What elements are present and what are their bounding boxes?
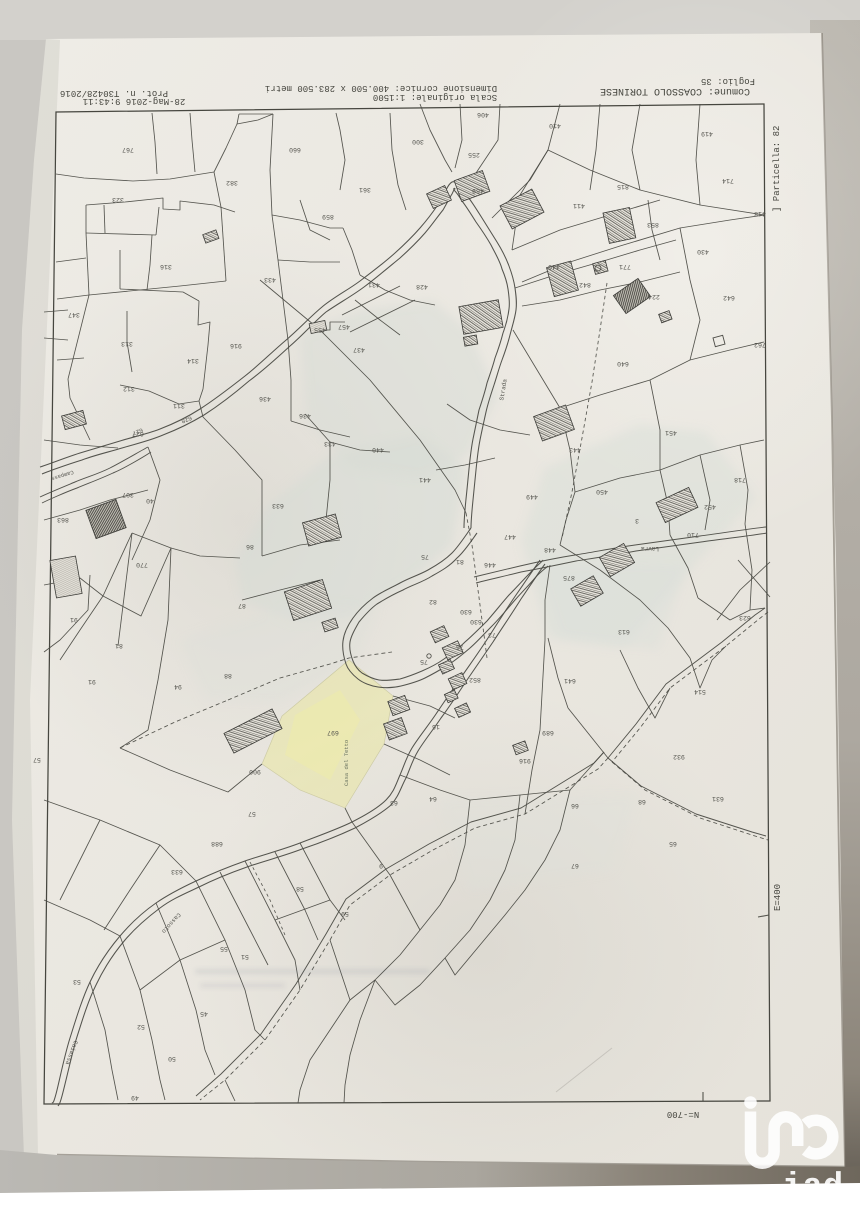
svg-text:52: 52 [137, 1023, 145, 1030]
svg-text:Casa del Tetto: Casa del Tetto [343, 740, 350, 786]
svg-text:65: 65 [669, 840, 677, 847]
svg-text:40: 40 [146, 497, 154, 504]
svg-text:630: 630 [460, 608, 472, 615]
svg-text:441: 441 [419, 476, 431, 483]
svg-text:469: 469 [472, 187, 484, 194]
svg-text:81: 81 [456, 558, 464, 565]
svg-text:443: 443 [569, 446, 581, 453]
svg-text:51: 51 [241, 953, 249, 960]
svg-text:73: 73 [488, 631, 496, 638]
svg-text:406: 406 [477, 111, 489, 118]
svg-text:431: 431 [368, 281, 380, 288]
svg-text:323: 323 [112, 196, 124, 203]
svg-text:16: 16 [432, 723, 440, 730]
svg-text:] Particella: 82: ] Particella: 82 [772, 126, 782, 212]
svg-text:916: 916 [519, 757, 531, 764]
svg-text:58: 58 [296, 885, 304, 892]
svg-text:689: 689 [542, 729, 554, 736]
svg-text:457: 457 [338, 323, 350, 330]
svg-text:28-Mag-2016 9:43:11: 28-Mag-2016 9:43:11 [83, 96, 186, 106]
svg-text:63: 63 [390, 799, 398, 806]
svg-text:631: 631 [712, 795, 724, 802]
svg-text:88: 88 [224, 672, 232, 679]
svg-text:623: 623 [739, 614, 751, 621]
svg-text:49: 49 [131, 1094, 139, 1101]
svg-text:449: 449 [526, 493, 538, 500]
svg-text:430: 430 [697, 248, 709, 255]
svg-text:440: 440 [372, 446, 384, 453]
svg-text:932: 932 [673, 753, 685, 760]
svg-text:66: 66 [571, 802, 579, 809]
svg-text:45: 45 [200, 1010, 208, 1017]
svg-text:642: 642 [723, 294, 735, 301]
svg-text:718: 718 [734, 476, 746, 483]
svg-text:514: 514 [694, 688, 706, 695]
svg-text:67: 67 [571, 862, 579, 869]
svg-text:E=400: E=400 [773, 884, 783, 911]
svg-text:900: 900 [249, 768, 261, 775]
svg-text:448: 448 [544, 546, 556, 553]
svg-text:433: 433 [324, 440, 336, 447]
svg-text:59: 59 [341, 910, 349, 917]
svg-text:Foglio: 35: Foglio: 35 [701, 76, 755, 86]
svg-text:53: 53 [73, 978, 81, 985]
svg-text:Lavra: Lavra [641, 545, 659, 552]
svg-text:Dimensione cornice: 400.500 x: Dimensione cornice: 400.500 x 283.500 me… [265, 83, 497, 93]
svg-text:Comune: COASSOLO TORINESE: Comune: COASSOLO TORINESE [600, 85, 750, 96]
svg-text:3: 3 [635, 517, 639, 524]
svg-text:Scala originale: 1:1500: Scala originale: 1:1500 [373, 92, 497, 102]
svg-text:307: 307 [122, 491, 134, 498]
svg-text:633: 633 [272, 502, 284, 509]
svg-text:452: 452 [704, 503, 716, 510]
svg-text:75: 75 [420, 658, 428, 665]
svg-text:437: 437 [353, 346, 365, 353]
svg-text:312: 312 [123, 385, 135, 392]
svg-text:57: 57 [33, 756, 41, 763]
svg-text:633: 633 [171, 868, 183, 875]
svg-text:440: 440 [548, 263, 560, 270]
svg-text:688: 688 [211, 840, 223, 847]
svg-text:76: 76 [456, 643, 464, 650]
svg-text:314: 314 [187, 357, 199, 364]
svg-text:316: 316 [160, 263, 172, 270]
svg-text:627: 627 [132, 430, 144, 437]
svg-text:50: 50 [168, 1055, 176, 1062]
svg-text:436: 436 [259, 395, 271, 402]
svg-text:863: 863 [57, 516, 69, 523]
svg-text:815: 815 [617, 183, 629, 190]
svg-text:428: 428 [416, 283, 428, 290]
svg-text:630: 630 [470, 618, 482, 625]
svg-text:853: 853 [647, 221, 659, 228]
svg-text:86: 86 [246, 543, 254, 550]
svg-text:411: 411 [573, 202, 585, 209]
svg-text:859: 859 [322, 213, 334, 220]
svg-text:767: 767 [122, 146, 134, 153]
svg-text:57: 57 [248, 810, 256, 817]
svg-text:446: 446 [484, 561, 496, 568]
svg-text:81: 81 [115, 642, 123, 649]
svg-text:9: 9 [379, 862, 383, 869]
svg-text:641: 641 [564, 677, 576, 684]
svg-text:770: 770 [136, 561, 148, 568]
svg-text:68: 68 [638, 798, 646, 805]
svg-text:347: 347 [68, 311, 80, 318]
svg-text:224: 224 [648, 293, 660, 300]
svg-text:714: 714 [722, 177, 734, 184]
svg-text:82: 82 [429, 598, 437, 605]
svg-text:419: 419 [701, 130, 713, 137]
svg-text:762: 762 [754, 341, 766, 348]
svg-text:91: 91 [88, 678, 96, 685]
svg-text:300: 300 [412, 138, 424, 145]
svg-text:710: 710 [687, 531, 699, 538]
svg-text:87: 87 [238, 602, 246, 609]
svg-text:418: 418 [754, 210, 766, 217]
svg-text:613: 613 [618, 628, 630, 635]
svg-text:660: 660 [289, 146, 301, 153]
svg-text:255: 255 [468, 151, 480, 158]
svg-text:410: 410 [549, 122, 561, 129]
svg-text:94: 94 [174, 683, 182, 690]
svg-text:N=-700: N=-700 [667, 1109, 699, 1119]
svg-text:640: 640 [617, 360, 629, 367]
svg-text:75: 75 [421, 553, 429, 560]
svg-text:361: 361 [359, 186, 371, 193]
svg-text:771: 771 [619, 263, 631, 270]
svg-text:447: 447 [504, 533, 516, 540]
svg-text:433: 433 [264, 276, 276, 283]
svg-text:697: 697 [327, 729, 339, 736]
svg-text:875: 875 [563, 574, 575, 581]
svg-text:436: 436 [299, 412, 311, 419]
svg-text:91: 91 [70, 616, 78, 623]
svg-text:311: 311 [173, 402, 185, 409]
svg-text:451: 451 [665, 429, 677, 436]
svg-text:450: 450 [596, 488, 608, 495]
svg-text:455: 455 [314, 326, 326, 333]
svg-text:64: 64 [429, 795, 437, 802]
svg-text:55: 55 [220, 945, 228, 952]
svg-text:916: 916 [230, 342, 242, 349]
svg-text:313: 313 [121, 340, 133, 347]
svg-text:842: 842 [579, 281, 591, 288]
svg-text:852: 852 [469, 676, 481, 683]
svg-text:382: 382 [226, 179, 238, 186]
